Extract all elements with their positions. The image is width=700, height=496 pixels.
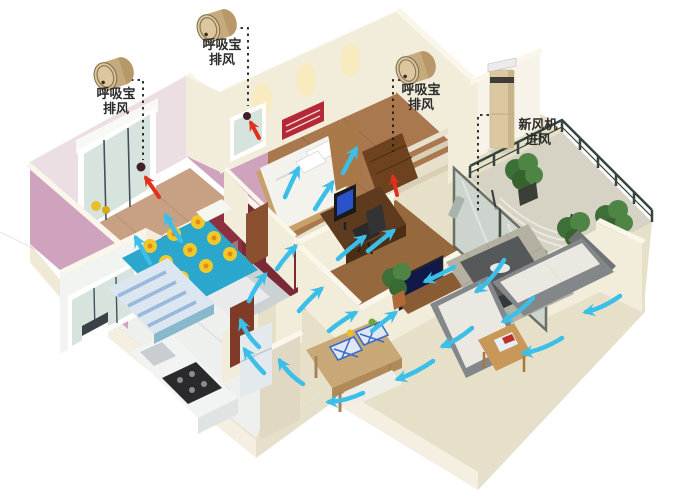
exhaust-outlet-kids	[137, 163, 146, 172]
exhaust-outlet-master	[243, 112, 251, 120]
balcony-pillar	[448, 82, 478, 184]
label-exhaust-3-device: 呼吸宝	[401, 82, 440, 97]
label-exhaust-1-device: 呼吸宝	[96, 86, 135, 101]
ventilation-floorplan-illustration: 呼吸宝 排风 呼吸宝 排风 呼吸宝 排风 新风机 进风	[0, 0, 700, 496]
label-exhaust-3-mode: 排风	[408, 97, 434, 112]
toy-on-sill	[91, 201, 101, 211]
label-fresh-air-device: 新风机	[518, 117, 557, 132]
label-exhaust-1-mode: 排风	[103, 101, 129, 116]
label-exhaust-2-device: 呼吸宝	[202, 37, 241, 52]
label-exhaust-2-mode: 排风	[209, 52, 235, 67]
fresh-air-tower-unit	[487, 58, 517, 154]
label-fresh-air-mode: 进风	[525, 132, 551, 147]
floorplan-scene: 呼吸宝 排风 呼吸宝 排风 呼吸宝 排风 新风机 进风	[0, 0, 700, 496]
